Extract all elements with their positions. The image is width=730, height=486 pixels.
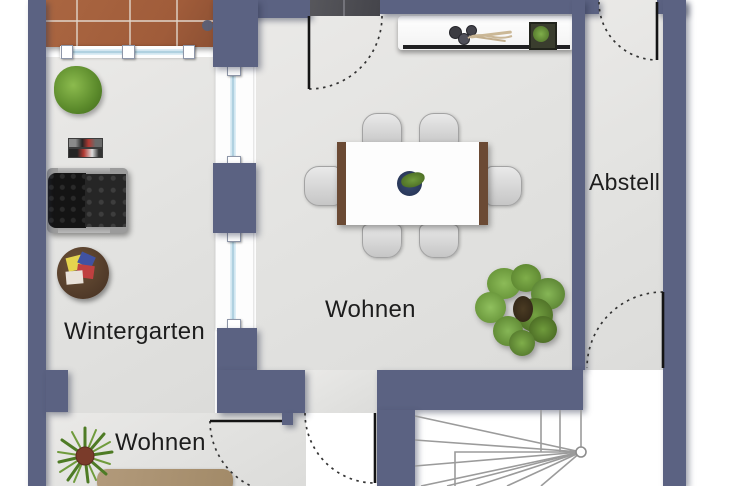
door-swing-arcs — [210, 2, 663, 486]
staircase — [415, 410, 586, 486]
counter-branch-decor — [468, 35, 512, 38]
floor-plan: Wintergarten Wohnen Abstell Wohnen — [0, 0, 730, 486]
plan-linework — [0, 0, 730, 486]
room-label-wohnen-lower: Wohnen — [115, 429, 206, 457]
lower-wohnen-door-arc — [210, 421, 282, 486]
door-leaves — [210, 2, 663, 483]
entrance-door-arc — [309, 16, 382, 89]
yucca-plant — [58, 428, 112, 482]
abstell-bottom-door-arc — [587, 292, 663, 368]
room-label-abstell: Abstell — [589, 169, 660, 196]
room-label-wintergarten: Wintergarten — [64, 318, 205, 346]
room-label-wohnen-main: Wohnen — [325, 296, 416, 324]
abstell-top-door-arc — [599, 2, 657, 60]
hall-door-arc — [305, 413, 375, 483]
